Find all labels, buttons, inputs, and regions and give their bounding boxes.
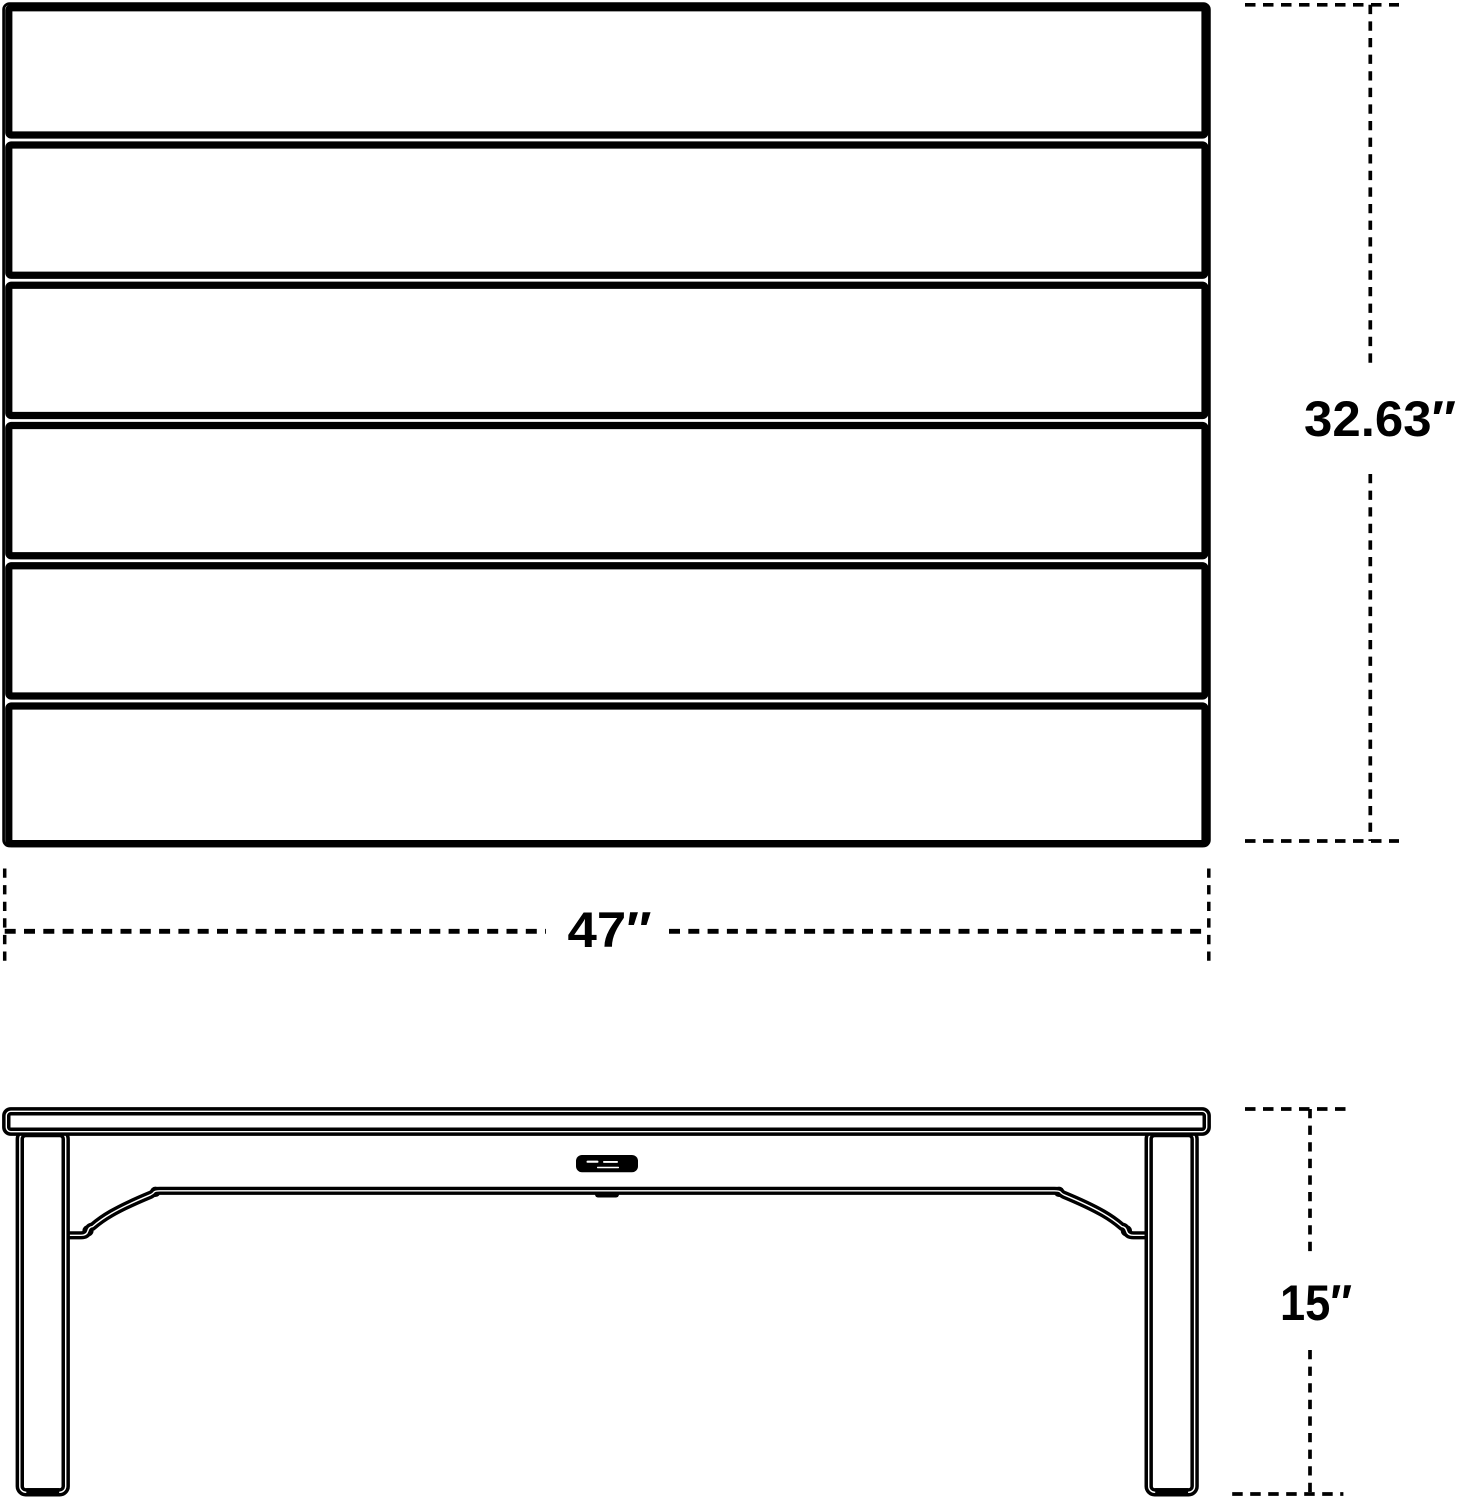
svg-text:47″: 47″ — [568, 902, 652, 958]
svg-text:32.63″: 32.63″ — [1304, 391, 1456, 447]
svg-text:15″: 15″ — [1280, 1275, 1352, 1331]
